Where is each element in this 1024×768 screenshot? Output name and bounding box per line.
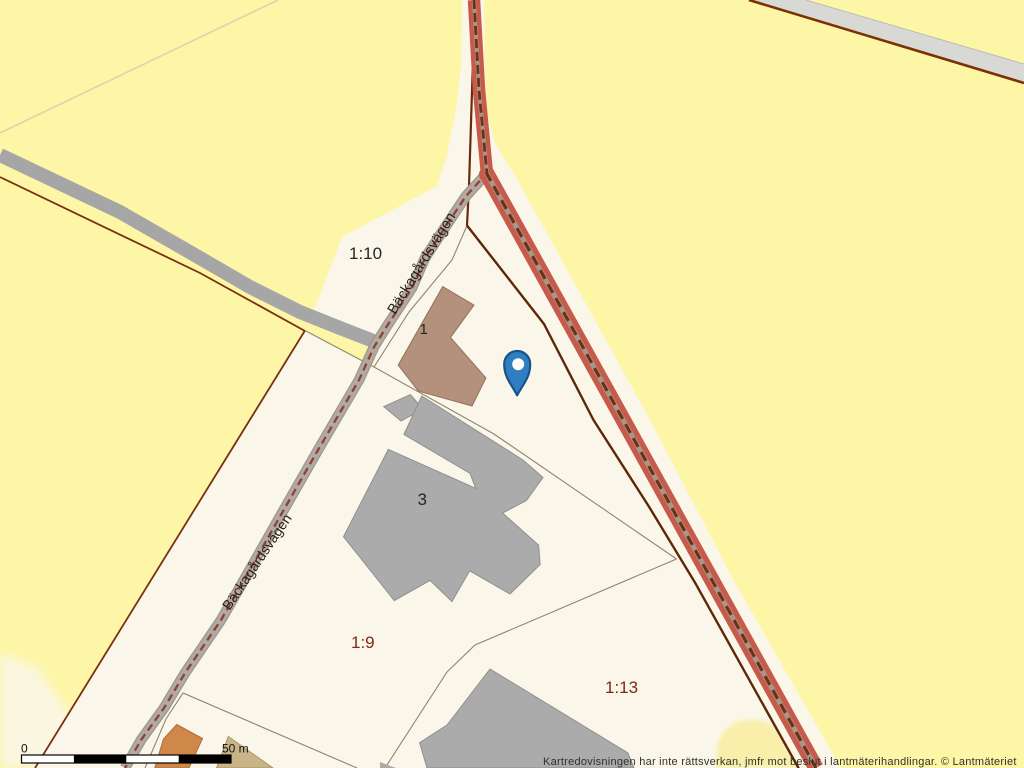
svg-text:50 m: 50 m <box>222 742 249 756</box>
svg-text:1:13: 1:13 <box>605 678 638 697</box>
svg-text:1:9: 1:9 <box>351 633 375 652</box>
svg-text:3: 3 <box>418 490 427 509</box>
svg-text:0: 0 <box>21 742 28 756</box>
svg-text:1:10: 1:10 <box>349 244 382 263</box>
svg-text:1: 1 <box>420 321 428 338</box>
svg-text:Kartredovisningen har inte rät: Kartredovisningen har inte rättsverkan, … <box>543 756 1017 768</box>
